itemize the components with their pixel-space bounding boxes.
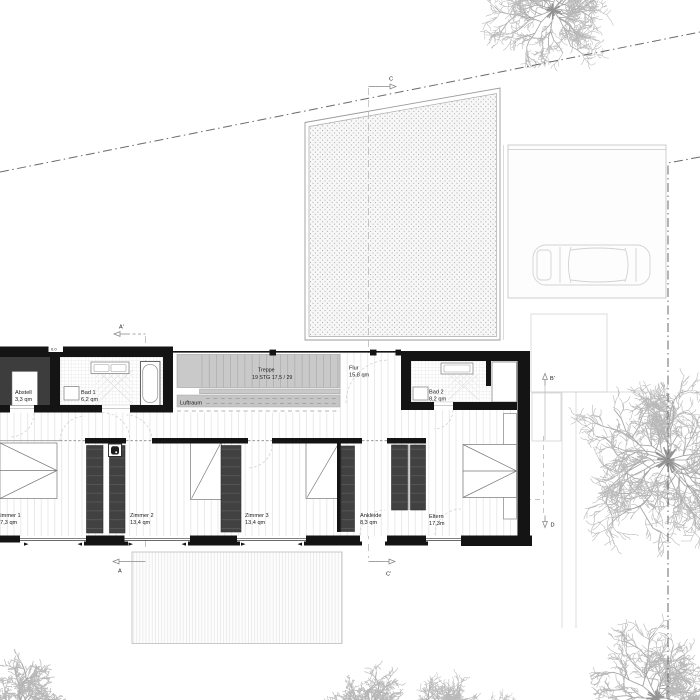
svg-text:Zimmer 2: Zimmer 2 bbox=[130, 513, 154, 519]
svg-text:0.0: 0.0 bbox=[51, 347, 57, 352]
svg-text:B': B' bbox=[550, 376, 555, 382]
svg-text:Flur: Flur bbox=[349, 366, 359, 372]
svg-text:13,4 qm: 13,4 qm bbox=[130, 520, 151, 526]
svg-text:Abstell: Abstell bbox=[15, 390, 32, 396]
svg-text:13,4 qm: 13,4 qm bbox=[245, 520, 266, 526]
svg-text:Eltern: Eltern bbox=[429, 514, 444, 520]
svg-text:8,2 qm: 8,2 qm bbox=[429, 397, 446, 403]
svg-text:3,3 qm: 3,3 qm bbox=[15, 397, 32, 403]
svg-text:17,3 qm: 17,3 qm bbox=[0, 520, 18, 526]
svg-text:C': C' bbox=[386, 572, 391, 578]
svg-text:6,2 qm: 6,2 qm bbox=[81, 397, 98, 403]
svg-text:Luftraum: Luftraum bbox=[180, 401, 202, 407]
svg-text:Ankleide: Ankleide bbox=[360, 513, 381, 519]
svg-text:A: A bbox=[118, 569, 122, 575]
svg-text:D: D bbox=[551, 523, 555, 529]
svg-text:19 STG 17,5 / 29: 19 STG 17,5 / 29 bbox=[252, 375, 292, 381]
svg-text:15,8 qm: 15,8 qm bbox=[349, 373, 370, 379]
svg-text:Zimmer 3: Zimmer 3 bbox=[245, 513, 269, 519]
svg-text:8,3 qm: 8,3 qm bbox=[360, 520, 377, 526]
svg-text:Bad 1: Bad 1 bbox=[81, 390, 96, 396]
svg-text:C: C bbox=[389, 77, 393, 83]
svg-text:Treppe: Treppe bbox=[258, 368, 275, 374]
svg-text:Zimmer 1: Zimmer 1 bbox=[0, 513, 21, 519]
svg-text:17,3m: 17,3m bbox=[429, 521, 445, 527]
svg-text:A': A' bbox=[119, 325, 124, 331]
svg-text:Bad 2: Bad 2 bbox=[429, 390, 444, 396]
